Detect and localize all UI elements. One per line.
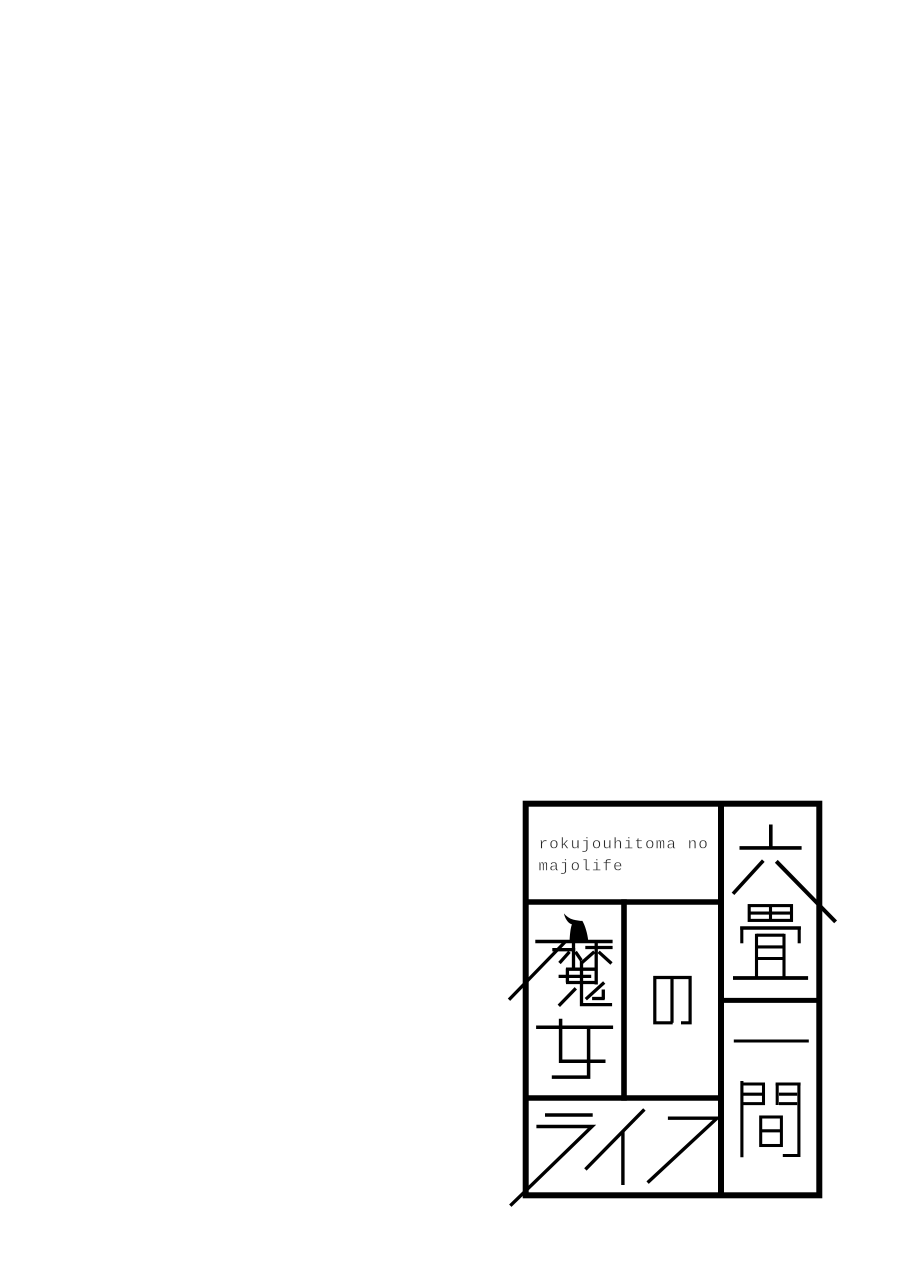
svg-text:rokujouhitoma no: rokujouhitoma no [539,836,709,854]
svg-text:majolife: majolife [539,858,624,876]
